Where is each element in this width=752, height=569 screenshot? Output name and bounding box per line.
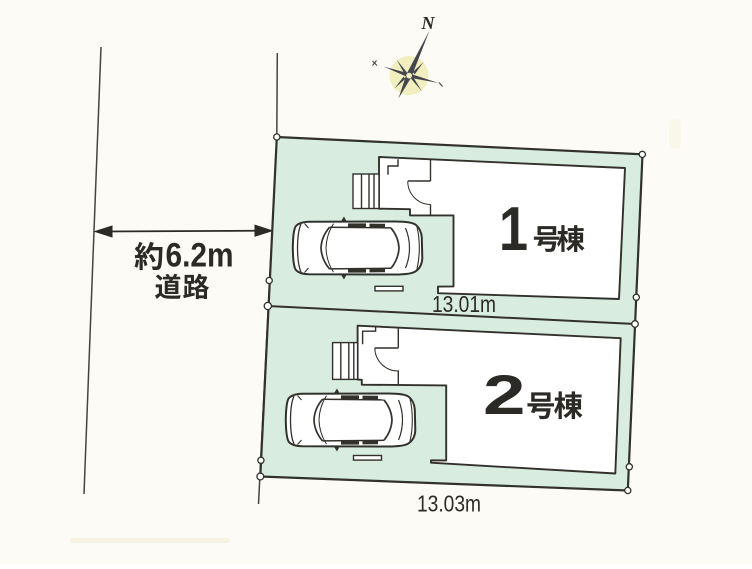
svg-text:6.2m: 6.2m — [166, 237, 234, 275]
svg-text:1: 1 — [499, 195, 528, 264]
svg-text:13.03m: 13.03m — [417, 490, 481, 516]
svg-text:13.01m: 13.01m — [432, 291, 496, 317]
svg-text:N: N — [421, 13, 436, 33]
svg-text:2: 2 — [483, 363, 526, 426]
